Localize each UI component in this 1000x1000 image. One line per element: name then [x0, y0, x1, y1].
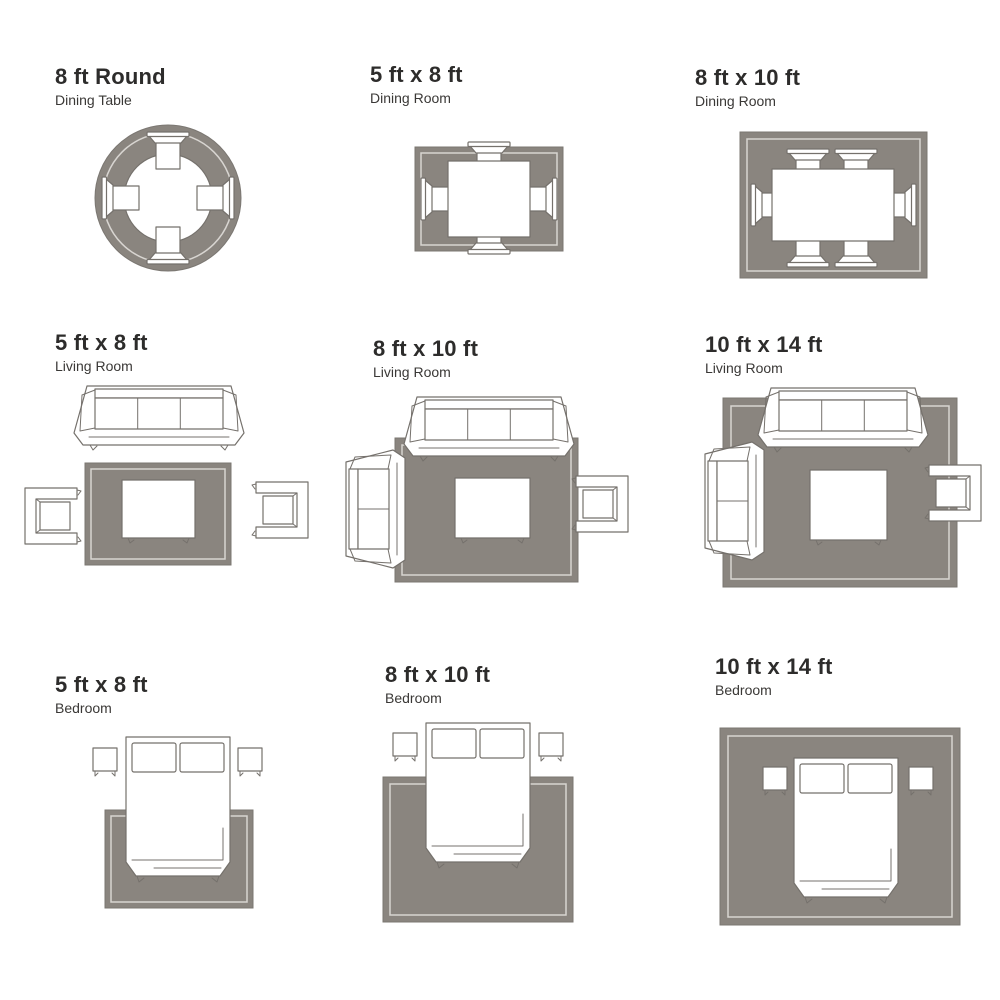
panel-dining-5x8: 5 ft x 8 ft Dining Room	[350, 55, 650, 305]
sofa	[74, 386, 244, 450]
sofa	[758, 388, 928, 452]
coffee-table	[122, 480, 195, 543]
scene-living-10x14	[665, 375, 985, 605]
panel-bedroom-5x8: 5 ft x 8 ft Bedroom	[15, 665, 315, 965]
panel-subtitle: Living Room	[705, 360, 783, 376]
panel-subtitle: Bedroom	[55, 700, 112, 716]
coffee-table	[810, 470, 887, 545]
armchair	[252, 482, 308, 538]
scene-living-5x8	[15, 380, 325, 570]
scene-living-8x10	[340, 390, 640, 590]
scene-bedroom-8x10	[335, 710, 585, 950]
armchair	[25, 488, 81, 544]
panel-title: 10 ft x 14 ft	[715, 654, 833, 680]
scene-bedroom-5x8	[15, 715, 265, 945]
rug-size-guide: 8 ft Round Dining Table 5 ft x 8 ft Dini…	[0, 0, 1000, 1000]
bed	[126, 737, 230, 882]
dining-table	[448, 161, 530, 237]
panel-dining-8x10: 8 ft x 10 ft Dining Room	[670, 57, 990, 307]
dining-table	[772, 169, 894, 241]
scene-bedroom-10x14	[700, 700, 970, 930]
panel-subtitle: Living Room	[55, 358, 133, 374]
panel-living-10x14: 10 ft x 14 ft Living Room	[665, 326, 995, 616]
panel-title: 10 ft x 14 ft	[705, 332, 823, 358]
nightstand	[539, 733, 563, 761]
armchair	[572, 476, 628, 532]
scene-dining-8x10	[700, 125, 940, 285]
nightstand	[93, 748, 117, 776]
panel-title: 8 ft x 10 ft	[373, 336, 478, 362]
loveseat	[346, 450, 405, 568]
panel-subtitle: Dining Room	[695, 93, 776, 109]
bed	[426, 723, 530, 868]
loveseat	[705, 442, 764, 560]
nightstand	[393, 733, 417, 761]
panel-title: 5 ft x 8 ft	[370, 62, 463, 88]
nightstand	[238, 748, 262, 776]
panel-title: 5 ft x 8 ft	[55, 672, 148, 698]
panel-title: 8 ft x 10 ft	[695, 65, 800, 91]
panel-subtitle: Dining Table	[55, 92, 132, 108]
panel-title: 8 ft Round	[55, 64, 166, 90]
panel-subtitle: Bedroom	[715, 682, 772, 698]
panel-subtitle: Dining Room	[370, 90, 451, 106]
panel-bedroom-10x14: 10 ft x 14 ft Bedroom	[700, 646, 1000, 956]
panel-bedroom-8x10: 8 ft x 10 ft Bedroom	[335, 656, 645, 956]
panel-living-5x8: 5 ft x 8 ft Living Room	[15, 325, 335, 615]
panel-title: 5 ft x 8 ft	[55, 330, 148, 356]
panel-title: 8 ft x 10 ft	[385, 662, 490, 688]
scene-dining-round	[93, 123, 243, 273]
scene-dining-5x8	[395, 115, 625, 265]
coffee-table	[455, 478, 530, 543]
bed	[794, 758, 898, 903]
panel-subtitle: Living Room	[373, 364, 451, 380]
sofa	[404, 397, 574, 461]
panel-living-8x10: 8 ft x 10 ft Living Room	[340, 330, 650, 620]
panel-dining-round-8ft: 8 ft Round Dining Table	[30, 58, 330, 308]
panel-subtitle: Bedroom	[385, 690, 442, 706]
